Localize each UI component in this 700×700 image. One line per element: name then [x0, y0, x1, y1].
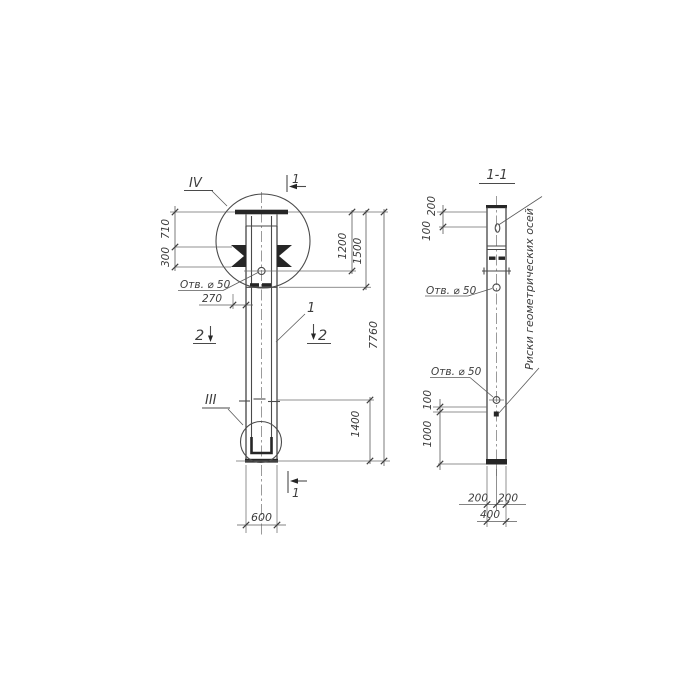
detail-III-label: III: [205, 393, 217, 408]
dim-7760-text: 7760: [367, 321, 380, 349]
section2-left-label: 2: [195, 328, 204, 344]
hole-note-text: Отв. ⌀ 50: [180, 279, 231, 291]
part-ref-label: 1: [307, 301, 315, 316]
arrow-down-icon: [208, 336, 213, 343]
section2-right-label: 2: [318, 328, 327, 344]
drawing-canvas: IV III 1 1 2: [0, 0, 700, 700]
hole-note-upper-text: Отв. ⌀ 50: [426, 285, 477, 297]
section-cut-1-bottom: 1: [288, 471, 307, 500]
detail-IV-label: IV: [189, 176, 203, 191]
hole-note-lower: Отв. ⌀ 50: [430, 366, 493, 397]
dim-600-text: 600: [251, 511, 272, 524]
dims-right-upper: 1200 1500: [337, 209, 369, 290]
dim-200-top-text: 200: [426, 196, 438, 216]
hole-note-lower-text: Отв. ⌀ 50: [431, 366, 482, 378]
hole-note-upper: Отв. ⌀ 50: [425, 285, 492, 297]
dims-section-bottom: 200 200 400: [459, 466, 526, 527]
dim-270: 270: [199, 293, 253, 309]
dim-200-right-text: 200: [498, 493, 518, 505]
section-title-text: 1-1: [486, 168, 507, 183]
column-top-plate: [235, 210, 288, 215]
dim-1400-text: 1400: [350, 410, 362, 437]
dim-100-top-text: 100: [421, 221, 433, 241]
front-view: IV III 1 1 2: [160, 172, 390, 537]
section-top-cap: [486, 205, 507, 208]
arrow-left-icon: [290, 478, 298, 483]
dim-1000-text: 1000: [422, 420, 434, 447]
corbel-right: [277, 245, 292, 267]
dims-left: 710 300: [160, 206, 232, 271]
lower-joint-ticks: [239, 399, 374, 402]
section1-top-label: 1: [292, 172, 300, 186]
dims-section-top: 200 100: [421, 196, 487, 241]
axis-mark-bottom: [494, 412, 499, 417]
section-bottom-end: [486, 459, 507, 465]
dim-270-text: 270: [202, 293, 222, 305]
column-drawing-svg: IV III 1 1 2: [0, 0, 700, 700]
dim-1200-text: 1200: [337, 232, 349, 259]
detail-callout-III: III: [202, 393, 243, 425]
flange-joint: [246, 283, 371, 287]
section1-bottom-label: 1: [292, 486, 300, 500]
dim-300-text: 300: [160, 247, 172, 267]
axes-note-text: Риски геометрических осей: [523, 208, 536, 370]
dim-1500-text: 1500: [352, 237, 364, 264]
corbel-left: [231, 245, 246, 267]
section-view: 1-1: [421, 168, 542, 527]
dim-710-text: 710: [160, 219, 172, 239]
section-cut-2-right: 2: [307, 324, 331, 344]
arrow-down-icon: [311, 334, 316, 341]
dim-100-low-text: 100: [422, 390, 434, 410]
dims-section-lower: 100 1000: [422, 390, 487, 470]
section-cut-2-left: 2: [193, 326, 216, 344]
section-title: 1-1: [479, 168, 515, 184]
detail-circle-III: [241, 422, 282, 463]
detail-callout-IV: IV: [184, 176, 227, 206]
dim-400-text: 400: [480, 509, 500, 521]
axes-note-callout: Риски геометрических осей: [499, 197, 543, 414]
part-ref-callout: 1: [276, 301, 315, 342]
section-cut-1-top: 1: [287, 172, 306, 192]
dim-200-left-text: 200: [468, 493, 488, 505]
